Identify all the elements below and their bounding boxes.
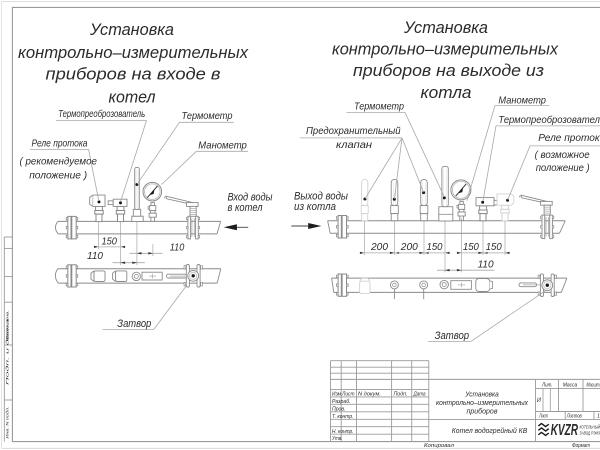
svg-text:N докум.: N докум. [358,392,381,398]
svg-text:Лит.: Лит. [541,383,552,389]
svg-text:Затвор: Затвор [435,330,470,342]
svg-text:Лист: Лист [539,414,549,420]
svg-text:Подп.: Подп. [394,392,408,398]
svg-text:Взам. инв.: Взам. инв. [6,310,10,340]
svg-text:приборов: приборов [467,406,498,415]
svg-text:Т. контр.: Т. контр. [332,414,354,420]
svg-text:приборов на выходе из: приборов на выходе из [353,62,544,80]
svg-text:( возможное: ( возможное [535,149,590,161]
svg-text:Н. контр.: Н. контр. [332,429,354,435]
svg-text:Реле протока: Реле протока [32,137,88,149]
svg-text:Термометр: Термометр [354,101,404,113]
svg-text:200: 200 [400,241,418,253]
svg-text:Инв. N подл.: Инв. N подл. [6,407,10,439]
svg-text:Копировал: Копировал [424,443,455,449]
svg-text:И: И [537,398,542,404]
svg-text:110: 110 [170,242,185,254]
svg-text:Масшт.: Масшт. [587,383,600,389]
svg-text:Дата: Дата [413,392,426,398]
svg-text:Установка: Установка [464,389,498,398]
svg-text:КОТЕЛЬНЫЙ: КОТЕЛЬНЫЙ [580,424,600,429]
svg-text:Лист: Лист [341,392,355,398]
svg-text:Изм: Изм [332,392,341,398]
svg-text:положение ): положение ) [29,169,87,181]
svg-text:котел: котел [109,88,156,106]
svg-text:Термометр: Термометр [182,110,233,122]
svg-text:KVZR: KVZR [551,422,579,439]
svg-text:Манометр: Манометр [498,94,546,106]
svg-text:из котла: из котла [294,201,336,213]
svg-text:150: 150 [463,241,479,253]
svg-text:150: 150 [486,241,502,253]
svg-text:Котел водогрейный КВ: Котел водогрейный КВ [452,426,528,435]
svg-text:котла: котла [421,84,472,102]
svg-text:контрольно–измерительных: контрольно–измерительных [332,41,559,59]
svg-text:клапан: клапан [336,139,372,151]
svg-text:Термопреоброзователь: Термопреоброзователь [58,108,145,120]
svg-text:Листов: Листов [566,414,582,420]
svg-text:( рекомендуемое: ( рекомендуемое [20,155,98,167]
svg-text:110: 110 [87,250,103,262]
svg-text:Установка: Установка [403,19,488,37]
svg-text:положение ): положение ) [536,162,590,174]
svg-text:Масса: Масса [563,383,578,389]
svg-text:ЗАВОД РЭМЗ: ЗАВОД РЭМЗ [580,430,600,435]
svg-text:Утв.: Утв. [332,436,343,442]
svg-text:150: 150 [101,235,117,247]
svg-text:Затвор: Затвор [117,318,151,330]
svg-text:Предохранительный: Предохранительный [306,125,401,137]
svg-text:Термопреоброзовател: Термопреоброзовател [498,114,600,126]
svg-text:150: 150 [427,241,443,253]
svg-text:Пров.: Пров. [332,406,346,412]
svg-text:Формат: Формат [572,443,590,449]
svg-text:200: 200 [370,241,388,253]
svg-text:Разраб.: Разраб. [332,399,351,405]
svg-text:контрольно–измерительных: контрольно–измерительных [18,44,249,62]
svg-text:в котел: в котел [228,202,263,214]
svg-text:Манометр: Манометр [198,140,247,152]
svg-text:Реле проток: Реле проток [538,132,600,144]
svg-text:Установка: Установка [89,21,174,39]
svg-text:110: 110 [478,258,494,270]
svg-text:приборов на входе в: приборов на входе в [46,66,221,84]
